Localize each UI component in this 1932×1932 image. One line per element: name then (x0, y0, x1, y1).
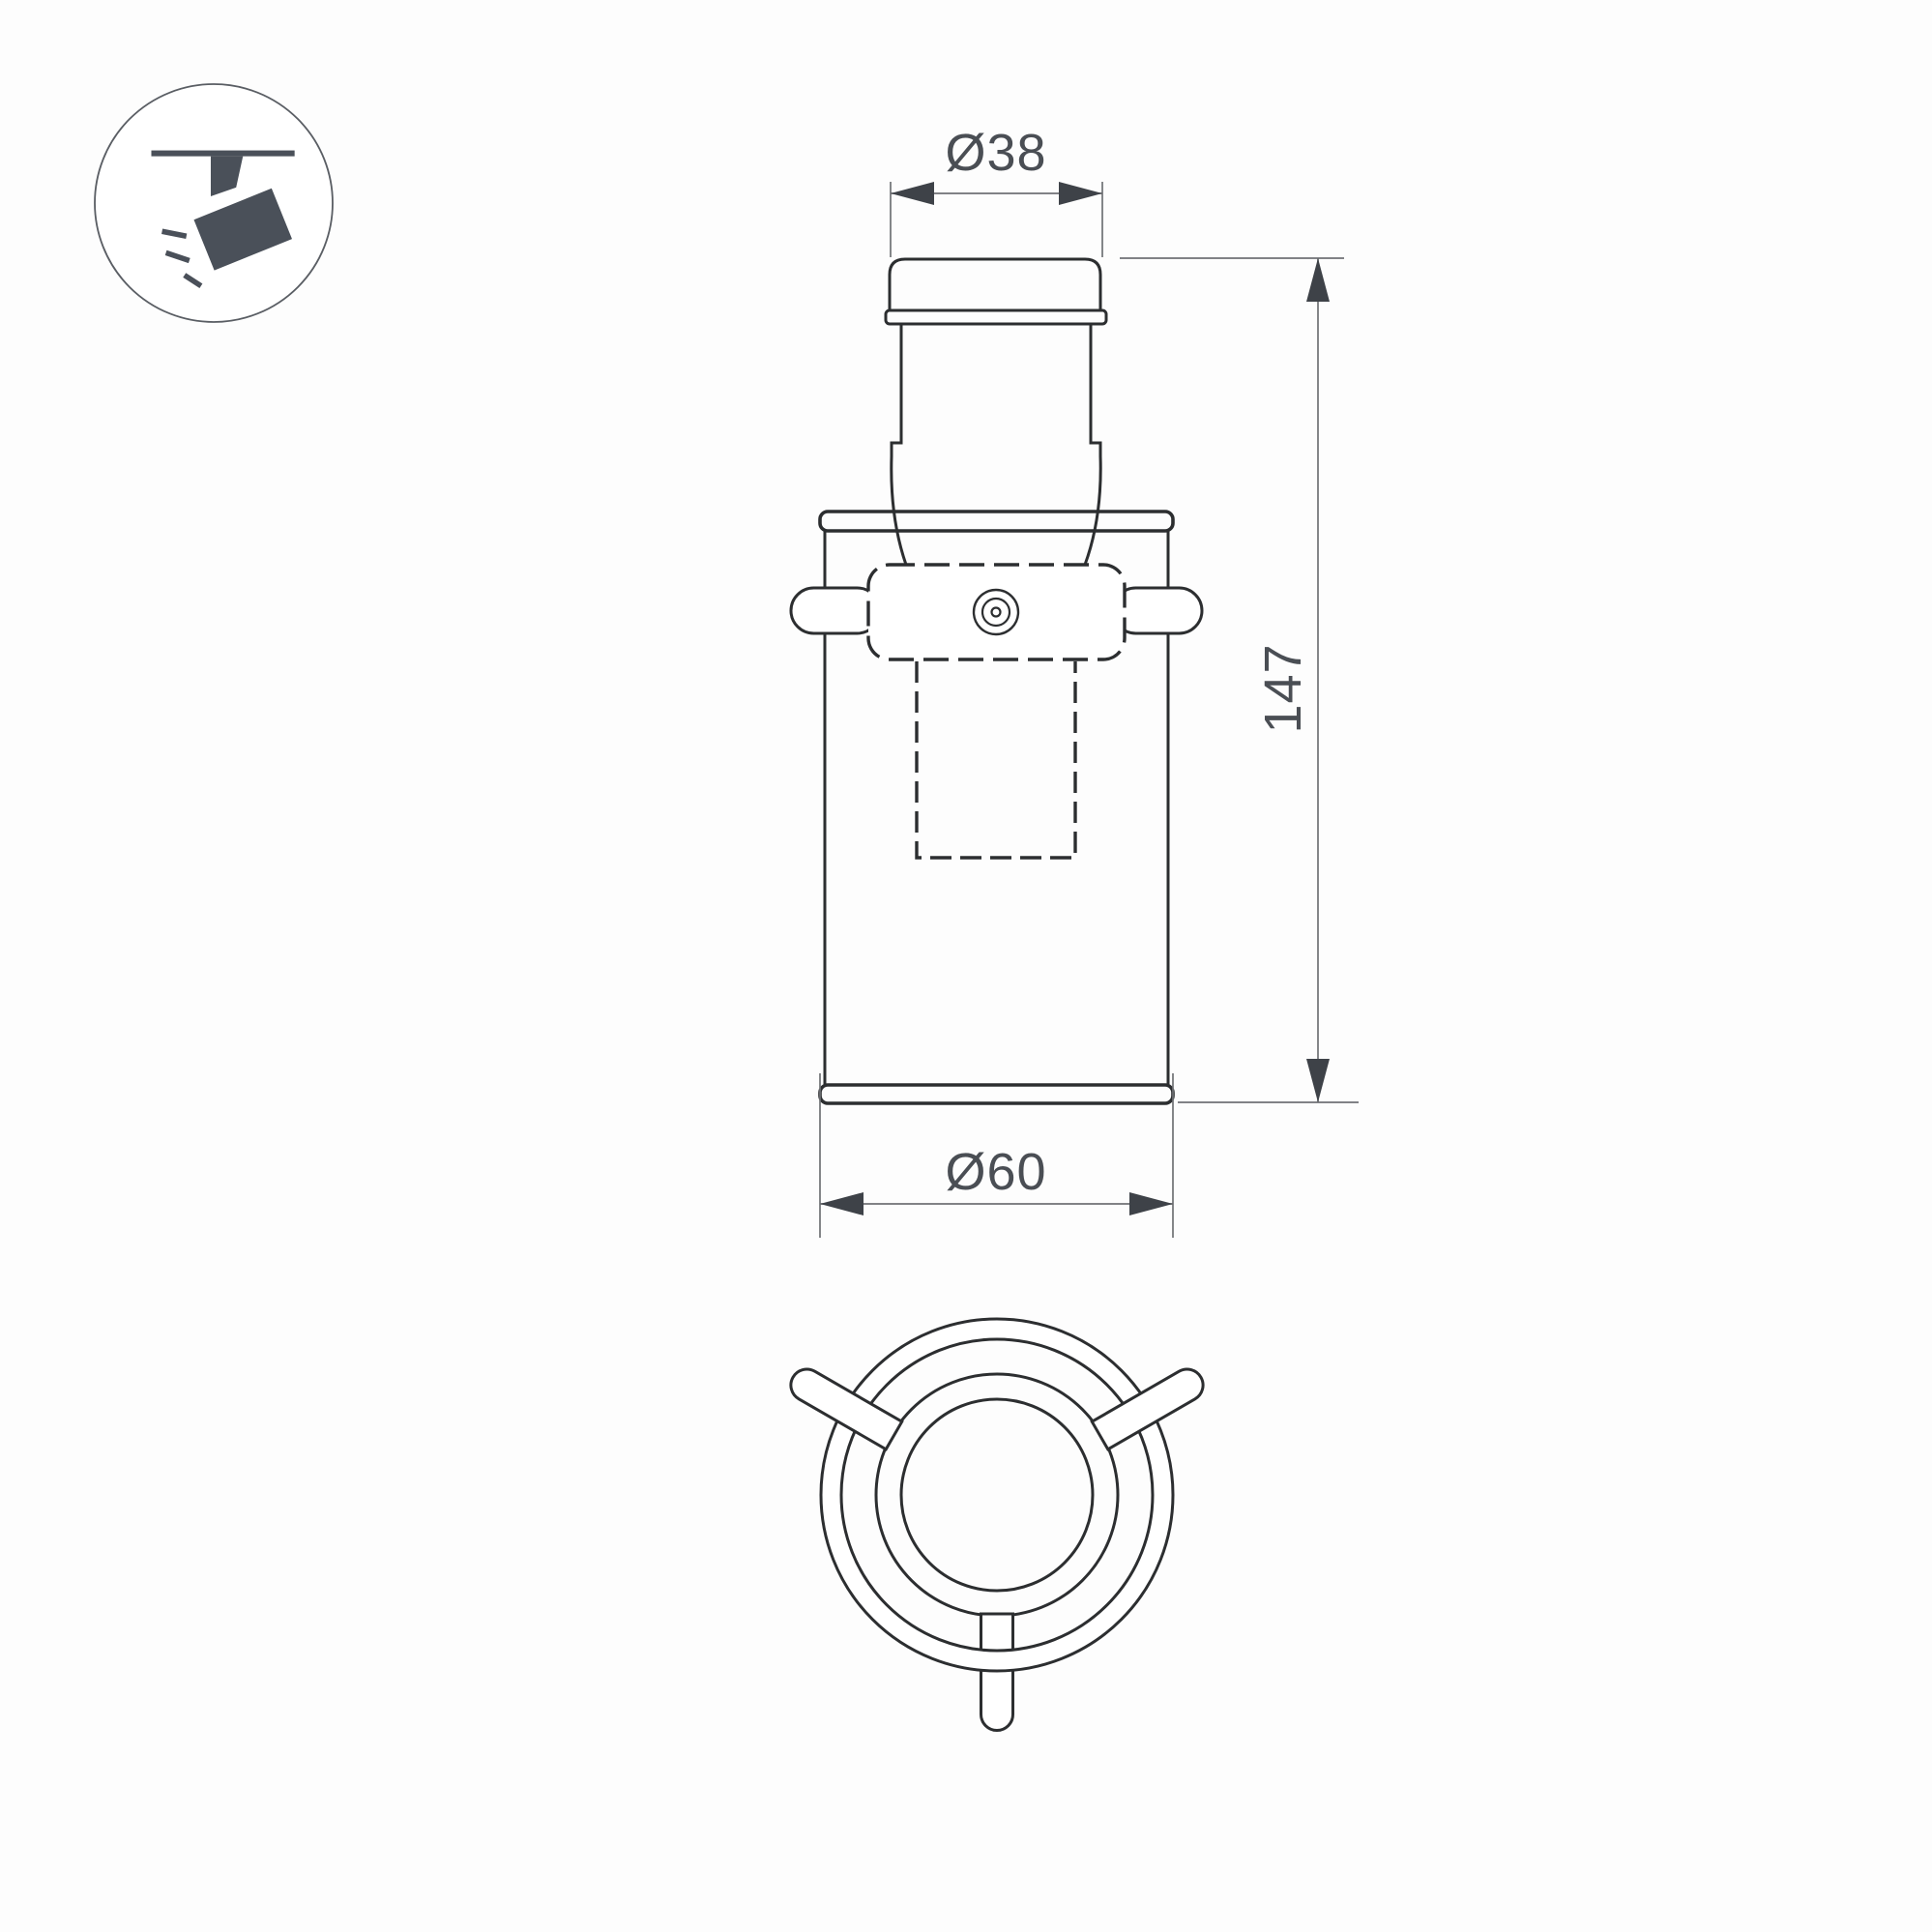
neck-right-outline (1085, 324, 1100, 565)
body-bottom-rim (820, 1085, 1173, 1103)
inner-ring-circle (876, 1374, 1118, 1616)
body-top-flange (820, 512, 1173, 531)
left-adjust-pin (791, 588, 880, 633)
adjuster-box-hidden (868, 565, 1125, 659)
lens-circle (901, 1399, 1093, 1591)
drawing-canvas: Ø38 147 Ø60 (0, 0, 1932, 1932)
front-view (791, 259, 1202, 1103)
bottom-view (785, 1319, 1209, 1731)
neck-left-outline (892, 324, 906, 565)
dim-label-height: 147 (1254, 643, 1312, 733)
dim-label-body-diameter: Ø60 (945, 1143, 1046, 1201)
lamp-barrel-hidden (917, 661, 1075, 858)
track-adapter-cap (890, 259, 1100, 310)
arrowhead-left (891, 182, 934, 205)
arrowhead-left (820, 1192, 864, 1215)
dimension-drawing: Ø38 147 Ø60 (0, 0, 1932, 1932)
arrowhead-right (1129, 1192, 1173, 1215)
arrowhead-up (1306, 258, 1330, 302)
dim-label-top-diameter: Ø38 (945, 124, 1046, 182)
right-adjust-pin (1113, 588, 1202, 633)
adapter-collar (886, 310, 1106, 324)
dimension-annotations: Ø38 147 Ø60 (820, 124, 1359, 1238)
arrowhead-down (1306, 1059, 1330, 1102)
arrowhead-right (1059, 182, 1102, 205)
